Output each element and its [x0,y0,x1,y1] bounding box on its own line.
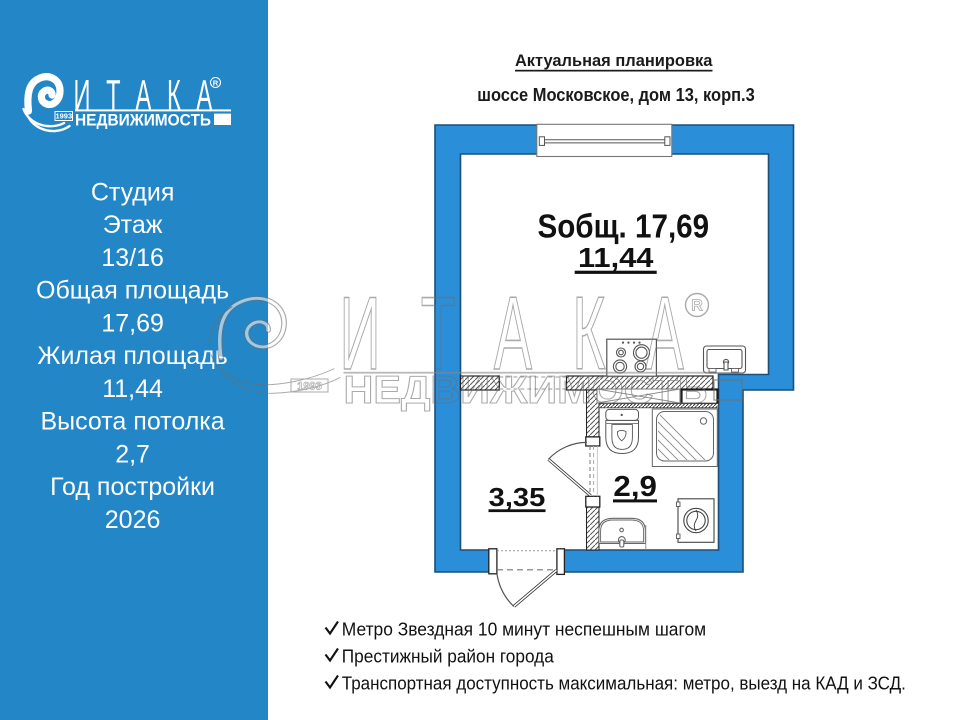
svg-text:1993: 1993 [55,112,72,121]
svg-text:НЕДВИЖИМОСТЬ: НЕДВИЖИМОСТЬ [75,112,211,130]
svg-text:Sобщ. 17,69: Sобщ. 17,69 [537,208,709,245]
svg-text:11,44: 11,44 [102,375,163,403]
svg-text:13/16: 13/16 [101,244,164,272]
svg-text:Высота потолка: Высота потолка [40,408,224,436]
svg-text:Метро Звездная 10 минут неспе: Метро Звездная 10 минут неспешным шагом [342,618,706,639]
svg-text:3,35: 3,35 [489,482,546,512]
svg-text:НЕДВИЖИМОСТЬ: НЕДВИЖИМОСТЬ [344,369,708,412]
svg-text:Престижный район города: Престижный район города [342,645,555,666]
svg-text:R: R [691,298,703,315]
svg-text:Студия: Студия [91,179,175,207]
svg-text:R: R [213,78,219,87]
svg-text:Жилая площадь: Жилая площадь [37,342,227,370]
svg-text:2,9: 2,9 [613,471,657,503]
svg-text:1993: 1993 [297,381,321,393]
svg-text:2,7: 2,7 [115,440,150,468]
svg-text:Год постройки: Год постройки [50,473,215,501]
svg-text:Этаж: Этаж [103,211,163,239]
svg-text:Общая площадь: Общая площадь [36,277,229,305]
svg-text:17,69: 17,69 [101,309,164,337]
svg-text:шоссе Московское, дом 13, корп: шоссе Московское, дом 13, корп.3 [477,84,755,105]
svg-text:2026: 2026 [105,506,161,534]
svg-text:Актуальная планировка: Актуальная планировка [515,51,713,70]
svg-text:11,44: 11,44 [578,242,654,273]
svg-text:Транспортная доступность макси: Транспортная доступность максимальная: м… [342,673,906,694]
